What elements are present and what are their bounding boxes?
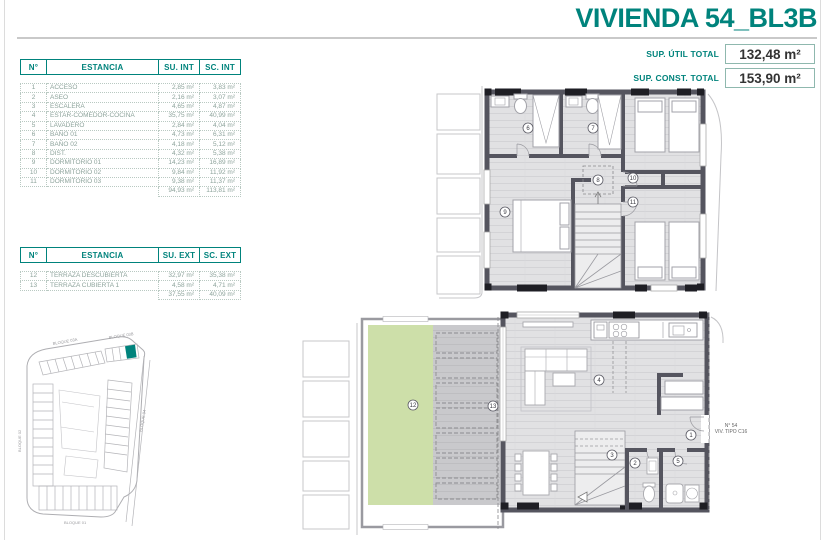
block-01 [39,486,117,510]
staircase [575,431,625,505]
col-header-name: ESTANCIA [47,60,159,75]
plot-boundary-curve [708,94,721,291]
col-header-sc: SC. EXT [200,248,241,263]
central-courtyard [59,390,100,478]
col-header-su: SU. INT [159,60,200,75]
staircase [575,192,621,288]
room-label-terraza12: 12 [408,400,418,410]
table-row: 10DORMITORIO 029,84 m²11,92 m² [21,168,241,177]
svg-text:12: 12 [410,403,417,409]
surface-totals: SUP. ÚTIL TOTAL 132,48 m² SUP. CONST. TO… [633,44,815,92]
table-row: 9DORMITORIO 0114,23 m²16,89 m² [21,159,241,168]
adjacent-building-outline [303,323,357,535]
col-header-su: SU. EXT [159,248,200,263]
unit-annotation-type: VIV. TIPO C16 [708,429,754,435]
terrace-opening-top [383,317,428,322]
svg-text:10: 10 [630,176,637,182]
page-title: VIVIENDA 54_BL3B [575,3,817,34]
table-header-row: N° ESTANCIA SU. EXT SC. EXT [21,248,241,263]
total-const-label: SUP. CONST. TOTAL [633,73,719,83]
col-header-num: N° [21,248,47,263]
room-label-dorm03: 11 [628,197,638,207]
col-header-sc: SC. INT [200,60,241,75]
page-border-right [820,0,821,540]
upper-floor-plan: 6 7 8 9 10 11 [425,86,725,304]
table-row: 2ASEO2,16 m²3,07 m² [21,93,241,102]
room-label-dorm02: 10 [628,173,638,183]
table-row: 6BAÑO 014,73 m²6,31 m² [21,130,241,139]
table-row: 8DIST.4,32 m²5,38 m² [21,149,241,158]
page-border-left [4,0,5,540]
plot-boundary-curve [711,317,723,343]
room-label-aseo: 2 [630,458,640,468]
block-02 [33,384,53,486]
site-plan: BLOQUE 03A BLOQUE 03B BLOQUE 02 BLOQUE 0… [6,332,166,532]
table-row: 4ESTAR-COMEDOR-COCINA35,75 m²40,99 m² [21,112,241,121]
table-row: 13TERRAZA CUBIERTA 14,58 m²4,71 m² [21,281,241,290]
lower-floor-plan: 12 13 4 1 3 2 5 [295,303,725,538]
table-row: 7BAÑO 024,18 m²5,12 m² [21,140,241,149]
room-label-dorm01: 9 [500,207,510,217]
total-util-row: SUP. ÚTIL TOTAL 132,48 m² [633,44,815,64]
table-header-row: N° ESTANCIA SU. INT SC. INT [21,60,241,75]
terrace-open-green [368,325,433,505]
table-row: 3ESCALERA4,65 m²4,87 m² [21,102,241,111]
terrace-opening-bottom [383,525,428,530]
room-label-bano01: 6 [523,123,533,133]
block-01-label: BLOQUE 01 [64,520,87,525]
col-header-num: N° [21,60,47,75]
total-const-row: SUP. CONST. TOTAL 153,90 m² [633,68,815,88]
col-header-name: ESTANCIA [47,248,159,263]
block-04 [104,380,132,472]
room-label-dist: 8 [593,175,603,185]
room-label-lavadero: 5 [673,456,683,466]
block-04-label: BLOQUE 04 [138,409,147,433]
header-divider [17,37,817,39]
access-road [126,356,150,526]
table-row: 11DORMITORIO 039,38 m²11,37 m² [21,177,241,186]
block-02-label: BLOQUE 02 [17,429,22,452]
table-total-row: 94,93 m²113,81 m² [21,187,241,196]
block-03a [39,351,105,375]
laundry-fixtures [666,484,699,503]
interior-areas-table: N° ESTANCIA SU. INT SC. INT 1ACCESO2,85 … [20,59,241,197]
highlighted-unit [125,345,137,359]
total-util-label: SUP. ÚTIL TOTAL [646,49,719,59]
table-total-row: 37,55 m²40,09 m² [21,290,241,299]
svg-text:11: 11 [630,200,637,206]
site-boundary [27,337,145,517]
table-row: 5LAVADERO2,84 m²4,04 m² [21,121,241,130]
table-row: 12TERRAZA DESCUBIERTA32,97 m²35,38 m² [21,272,241,281]
exterior-areas-table: N° ESTANCIA SU. EXT SC. EXT 12TERRAZA DE… [20,247,241,300]
room-label-estar: 4 [594,375,604,385]
room-label-acceso: 1 [686,430,696,440]
total-util-value: 132,48 m² [725,44,815,64]
total-const-value: 153,90 m² [725,68,815,88]
table-row: 1ACCESO2,85 m²3,83 m² [21,84,241,93]
kitchen [591,320,703,340]
svg-text:13: 13 [490,404,497,410]
room-label-terraza13: 13 [488,401,498,411]
room-label-bano02: 7 [588,123,598,133]
unit-annotation: N° 54 VIV. TIPO C16 [708,423,754,435]
room-label-escalera: 3 [607,450,617,460]
adjacent-building-outline [437,86,482,298]
